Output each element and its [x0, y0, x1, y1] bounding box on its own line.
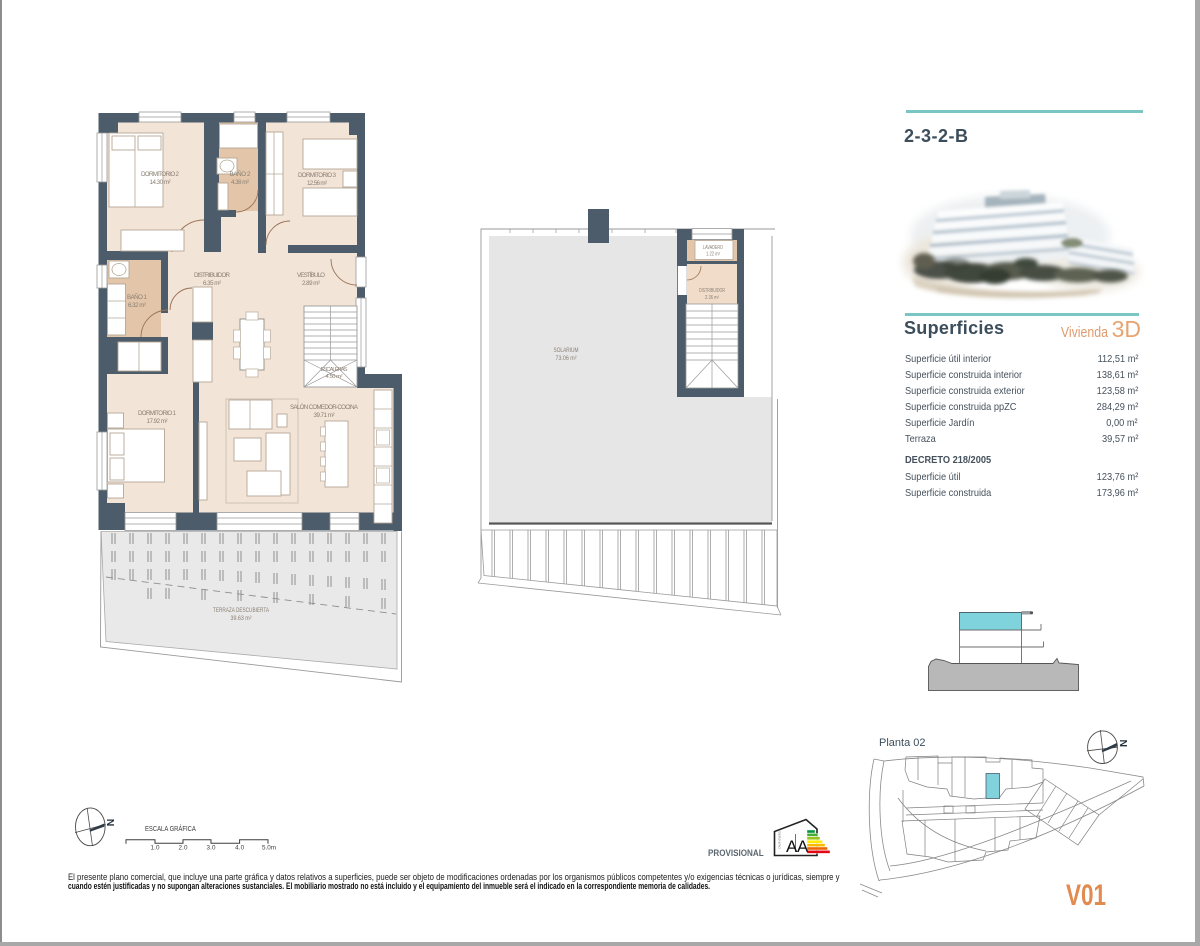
svg-text:2.89 m²: 2.89 m² [302, 280, 320, 287]
svg-text:12.56 m²: 12.56 m² [307, 180, 327, 187]
svg-text:VESTÍBULO: VESTÍBULO [297, 272, 325, 279]
svg-text:14.30 m²: 14.30 m² [150, 179, 171, 186]
svg-text:6.35 m²: 6.35 m² [203, 280, 221, 287]
svg-text:SALÓN COMEDOR-COCINA: SALÓN COMEDOR-COCINA [290, 404, 359, 411]
svg-text:DORMITORIO 1: DORMITORIO 1 [138, 410, 177, 417]
svg-text:5.0m: 5.0m [262, 845, 276, 852]
svg-text:BAÑO 1: BAÑO 1 [127, 294, 148, 301]
svg-text:CALIF. ENERG.: CALIF. ENERG. [778, 830, 782, 849]
svg-text:SOLARIUM: SOLARIUM [554, 347, 579, 354]
svg-text:LAVADERO: LAVADERO [703, 245, 723, 251]
svg-text:DORMITORIO 2: DORMITORIO 2 [141, 171, 180, 178]
svg-text:17.92 m²: 17.92 m² [147, 418, 168, 425]
svg-text:DORMITORIO 3: DORMITORIO 3 [298, 172, 337, 179]
svg-text:N: N [104, 819, 116, 827]
svg-text:39.63 m²: 39.63 m² [231, 615, 252, 622]
svg-text:2.36 m²: 2.36 m² [705, 295, 719, 301]
svg-text:DISTRIBUIDOR: DISTRIBUIDOR [194, 272, 231, 279]
svg-text:2.0: 2.0 [179, 845, 188, 852]
svg-text:A: A [797, 837, 809, 856]
svg-text:DISTRIBUIDOR: DISTRIBUIDOR [699, 288, 725, 294]
svg-text:6.32 m²: 6.32 m² [128, 302, 146, 309]
svg-text:BAÑO 2: BAÑO 2 [230, 171, 252, 178]
svg-text:ESCALERAS: ESCALERAS [321, 367, 348, 373]
svg-text:TERRAZA DESCUBIERTA: TERRAZA DESCUBIERTA [213, 607, 270, 614]
svg-text:73.06 m²: 73.06 m² [556, 355, 577, 362]
svg-text:1.0: 1.0 [151, 845, 160, 852]
svg-text:4.0: 4.0 [235, 845, 244, 852]
svg-text:N: N [1117, 740, 1129, 748]
svg-text:1.22 m²: 1.22 m² [706, 252, 720, 258]
svg-text:4.50 m²: 4.50 m² [326, 374, 343, 380]
svg-text:39.71 m²: 39.71 m² [314, 412, 335, 419]
svg-text:3.0: 3.0 [207, 845, 216, 852]
svg-text:4.38 m²: 4.38 m² [231, 179, 249, 186]
